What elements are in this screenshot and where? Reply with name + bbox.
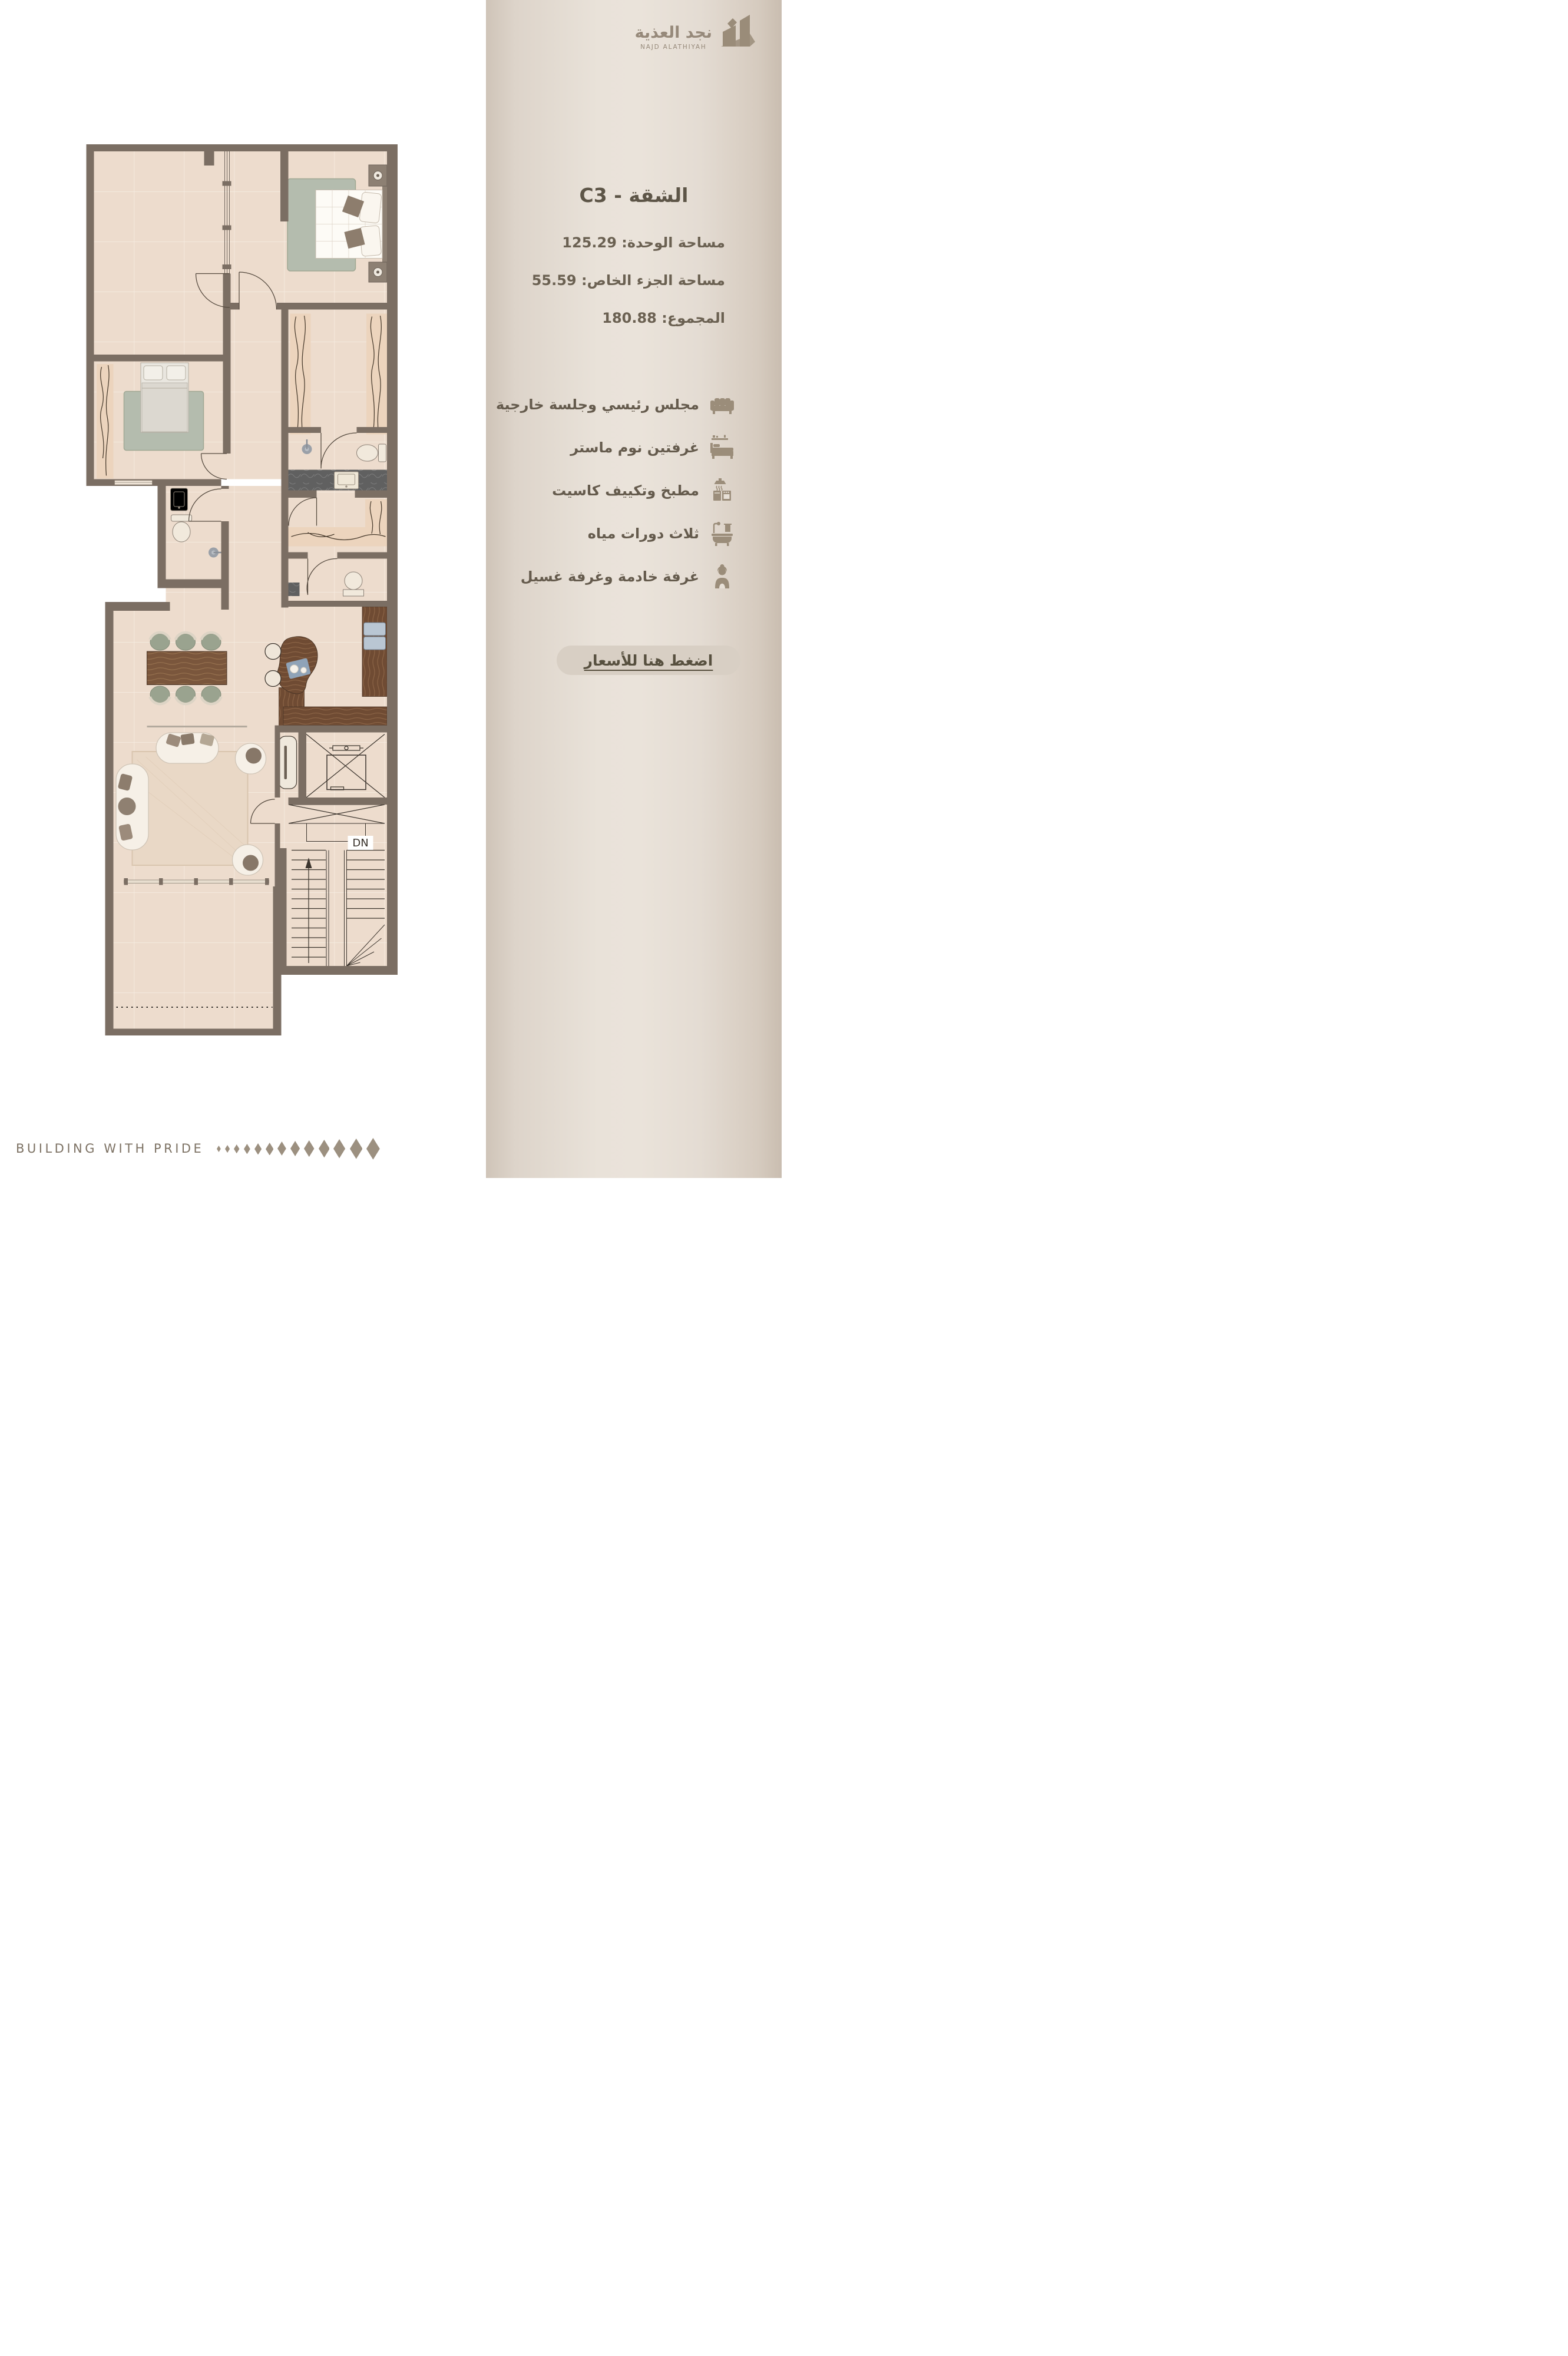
- bath-icon: [709, 520, 736, 547]
- kitchen-icon: [709, 477, 736, 504]
- feature-label: ثلاث دورات مياه: [588, 525, 699, 542]
- tv-screen: [285, 746, 287, 779]
- footer-diamonds: [217, 1138, 380, 1160]
- feature-maid-laundry: غرفة خادمة وغرفة غسيل: [496, 563, 736, 590]
- unit-area-line: مساحة الوحدة: 125.29: [532, 234, 725, 251]
- master-bedroom-1: [287, 165, 387, 282]
- maid-icon: [709, 563, 736, 590]
- stairs-down-label: DN: [352, 837, 368, 849]
- brand-logo: نجد العذية NAJD ALATHIYAH: [635, 13, 756, 53]
- brand-name-arabic: نجد العذية: [635, 24, 712, 42]
- sofa-icon: [709, 391, 736, 418]
- private-area-line: مساحة الجزء الخاص: 55.59: [532, 272, 725, 289]
- unit-area-info: مساحة الوحدة: 125.29 مساحة الجزء الخاص: …: [532, 234, 725, 326]
- feature-kitchen: مطبخ وتكييف كاسيت: [496, 477, 736, 504]
- brand-mark-icon: [720, 13, 756, 53]
- footer: BUILDING WITH PRIDE: [16, 1138, 380, 1160]
- bed-icon: [709, 434, 736, 461]
- prices-link-button[interactable]: اضغط هنا للأسعار: [557, 646, 740, 675]
- feature-label: مجلس رئيسي وجلسة خارجية: [496, 396, 699, 413]
- bedroom2-window: [115, 481, 153, 485]
- feature-label: غرفتين نوم ماستر: [570, 439, 699, 456]
- unit-title: الشقة - C3: [486, 184, 782, 207]
- feature-bedrooms: غرفتين نوم ماستر: [496, 434, 736, 461]
- info-panel: نجد العذية NAJD ALATHIYAH الشقة - C3 مسا…: [486, 0, 782, 1178]
- feature-label: غرفة خادمة وغرفة غسيل: [521, 568, 699, 585]
- tv-console: [279, 736, 297, 789]
- feature-label: مطبخ وتكييف كاسيت: [552, 482, 699, 499]
- dining-area: [147, 633, 227, 704]
- feature-list: مجلس رئيسي وجلسة خارجية غرفتين نوم ماستر…: [496, 391, 736, 590]
- total-area-line: المجموع: 180.88: [532, 310, 725, 326]
- floor-plan: DN: [84, 141, 399, 1040]
- brand-name-english: NAJD ALATHIYAH: [635, 44, 712, 51]
- brochure-page: DN: [0, 0, 784, 1178]
- feature-bathrooms: ثلاث دورات مياه: [496, 520, 736, 547]
- footer-slogan: BUILDING WITH PRIDE: [16, 1141, 204, 1156]
- feature-majlis: مجلس رئيسي وجلسة خارجية: [496, 391, 736, 418]
